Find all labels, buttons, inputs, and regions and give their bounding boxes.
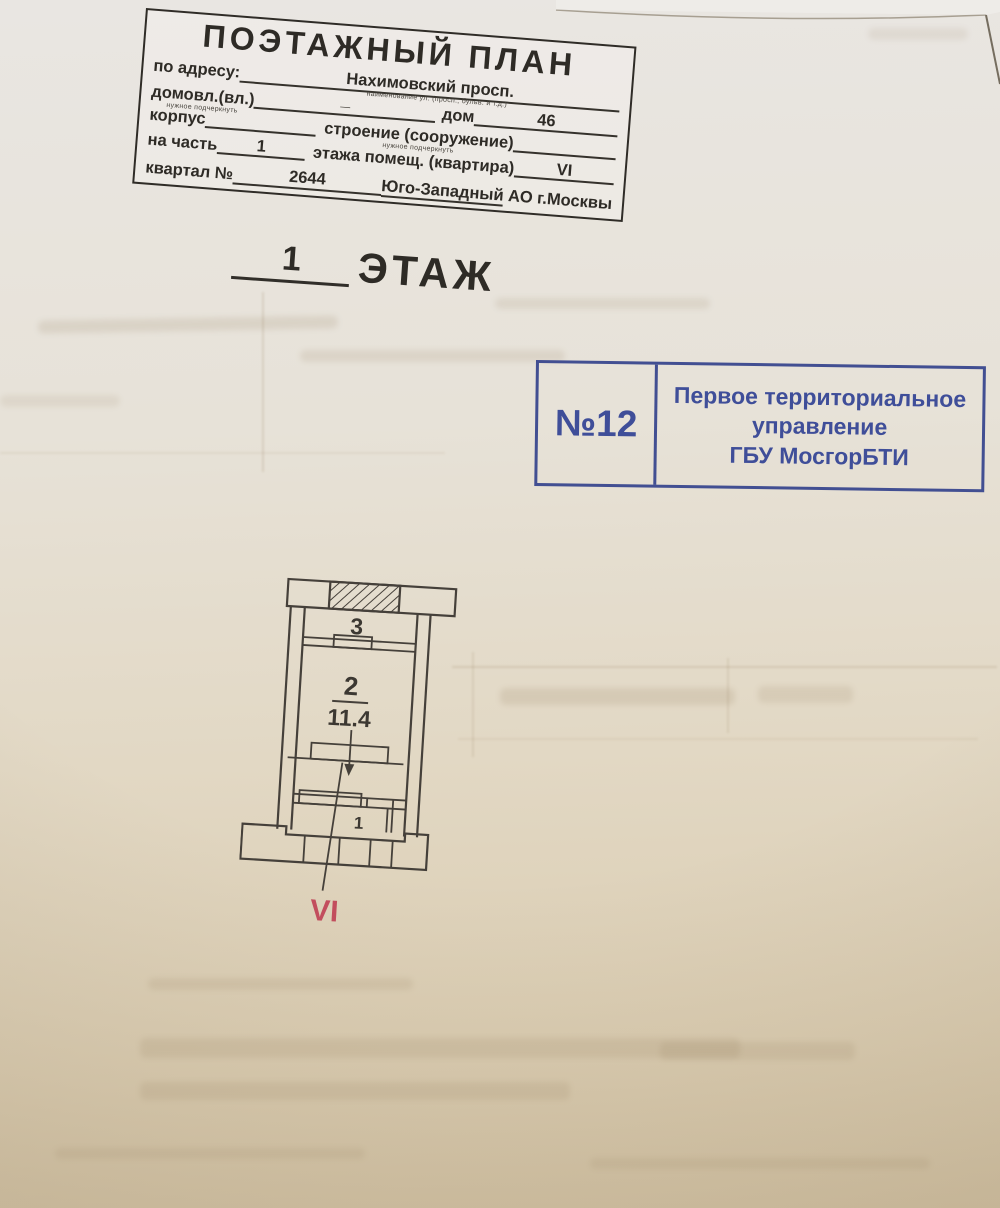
floor-heading: 1 ЭТАЖ xyxy=(231,236,497,297)
district-underlined: Юго-Западный xyxy=(381,177,505,207)
bti-org-line1: Первое территориальное xyxy=(674,381,967,415)
block-value: 2644 xyxy=(288,168,326,189)
bleedthrough-smudge xyxy=(458,738,978,740)
vestibule-opening xyxy=(299,790,362,807)
bleedthrough-smudge xyxy=(758,686,853,703)
floor-plan-form-stamp: ПОЭТАЖНЫЙ ПЛАН по адресу: Нахимовский пр… xyxy=(132,8,636,222)
apartment-field: VI xyxy=(514,159,616,186)
floor-plan-drawing: 3 2 11.4 1 VI xyxy=(235,571,462,935)
bti-org-line2: управление xyxy=(752,411,888,442)
right-wall-inner xyxy=(404,614,418,837)
bottom-wall xyxy=(240,824,428,870)
room2-fraction-line xyxy=(332,701,368,703)
bleedthrough-smudge xyxy=(38,315,338,333)
bleedthrough-smudge xyxy=(472,652,474,757)
block-field: 2644 xyxy=(232,165,382,196)
part-value: 1 xyxy=(256,137,267,156)
bleedthrough-smudge xyxy=(590,1158,930,1169)
left-wall-inner xyxy=(291,607,305,830)
bleedthrough-smudge xyxy=(55,1148,365,1159)
house-label: дом xyxy=(441,106,475,126)
address-label: по адресу: xyxy=(153,58,241,82)
entrance-arrow-head xyxy=(344,764,355,777)
left-wall-outer xyxy=(277,606,291,829)
premises-leader-line xyxy=(323,762,343,891)
bleedthrough-smudge xyxy=(140,1038,740,1058)
house-value: 46 xyxy=(537,111,557,130)
room-3-label: 3 xyxy=(350,613,364,640)
part-label: на часть xyxy=(147,132,218,155)
premises-label: VI xyxy=(309,894,339,929)
room-2-label: 2 xyxy=(343,671,359,702)
block-label: квартал № xyxy=(145,160,234,184)
bleedthrough-smudge xyxy=(500,688,735,705)
bleedthrough-smudge xyxy=(0,395,120,407)
floor-number: 1 xyxy=(231,236,352,287)
ownership-label-stack: домовл.(вл.) нужное подчеркнуть xyxy=(151,83,255,108)
room1-jamb xyxy=(391,809,392,833)
right-wall-outer xyxy=(417,615,431,838)
bti-org-name: Первое территориальное управление ГБУ Мо… xyxy=(656,365,983,490)
district: Юго-Западный АО г.Москвы xyxy=(381,178,613,213)
apartment-value: VI xyxy=(556,161,573,180)
entrance-arrow-icon xyxy=(349,730,351,768)
vestibule-partition xyxy=(293,794,406,801)
bleedthrough-smudge xyxy=(0,452,445,454)
bleedthrough-smudge xyxy=(148,978,413,990)
bleedthrough-smudge xyxy=(660,1042,855,1060)
bleedthrough-smudge xyxy=(300,350,565,362)
bti-stamp: №12 Первое территориальное управление ГБ… xyxy=(534,360,986,492)
part-field: 1 xyxy=(217,135,306,161)
bleedthrough-smudge xyxy=(140,1082,570,1100)
room-2-area: 11.4 xyxy=(327,704,372,733)
room1-jamb xyxy=(386,808,387,832)
threshold-line xyxy=(288,757,404,764)
bleedthrough-smudge xyxy=(452,666,997,668)
bleedthrough-smudge xyxy=(495,298,710,309)
floor-label: ЭТАЖ xyxy=(357,248,497,297)
hatched-wall-section xyxy=(329,582,401,613)
district-rest: АО г.Москвы xyxy=(503,187,613,213)
bti-stamp-number: №12 xyxy=(537,363,658,485)
bleedthrough-smudge xyxy=(868,28,968,40)
floor-plan-svg: 3 2 11.4 1 VI xyxy=(235,571,462,935)
bleedthrough-smudge xyxy=(262,292,264,472)
bti-org-line3: ГБУ МосгорБТИ xyxy=(729,440,909,472)
ownership-dash: — xyxy=(340,101,351,113)
room-1-label: 1 xyxy=(353,813,364,833)
